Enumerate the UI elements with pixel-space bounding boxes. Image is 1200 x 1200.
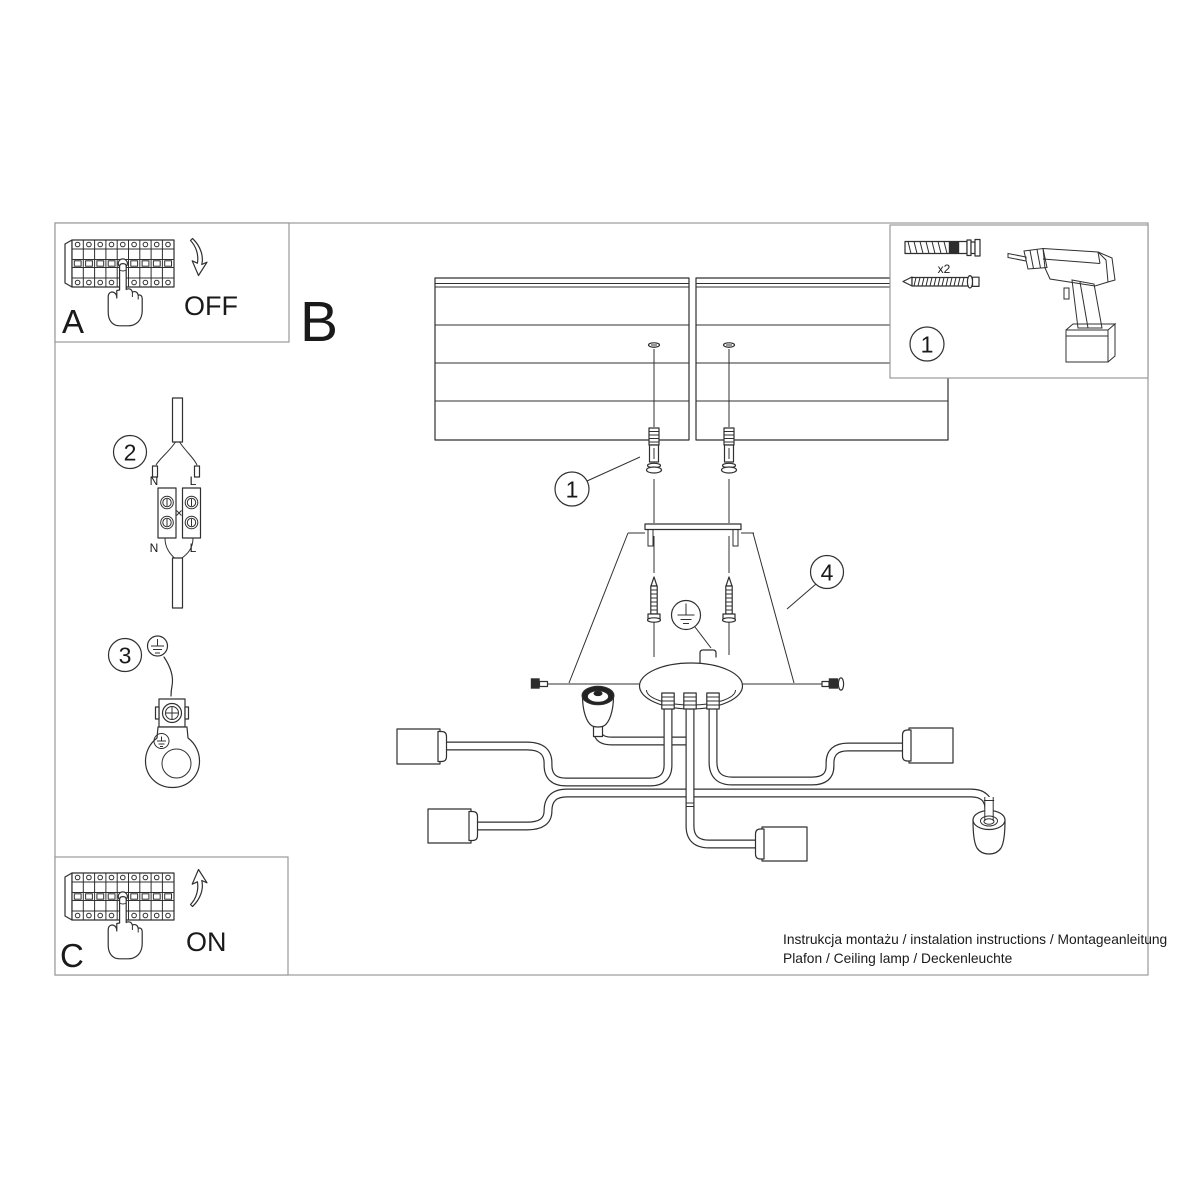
callout-2-number: 2	[124, 440, 137, 466]
screw-icon	[903, 276, 979, 288]
callout-4-number: 4	[821, 560, 834, 586]
lamp-arm-center	[686, 703, 763, 844]
ceiling-panels	[435, 278, 948, 440]
lamp-socket-lower-left	[428, 809, 478, 843]
callout-3-number: 3	[119, 643, 132, 669]
step-c-label: C	[60, 937, 84, 974]
earth-hook-icon	[700, 650, 716, 663]
earth-badge-icon	[148, 636, 168, 656]
ground-terminal-icon	[156, 699, 189, 727]
canopy-end-view	[146, 727, 200, 788]
wire-label-n-bottom: N	[150, 541, 159, 555]
footer-line-2: Plafon / Ceiling lamp / Deckenleuchte	[783, 951, 1013, 966]
canopy-bolt-left	[531, 679, 548, 689]
alignment-guides-upper	[654, 479, 729, 523]
cable-top	[173, 398, 183, 442]
instruction-sheet: B 1	[0, 0, 1200, 1200]
ground-detail: 3	[109, 636, 200, 788]
canopy-bolt-right	[822, 678, 844, 690]
wiring-detail: 2 N L N L	[114, 398, 201, 608]
wire-label-n-top: N	[150, 474, 159, 488]
wall-plug-icon-left	[647, 428, 662, 473]
step-a-label: A	[62, 303, 84, 340]
quantity-label: x2	[938, 262, 951, 276]
wall-plug-icon	[905, 240, 980, 257]
alignment-guides-inner	[654, 536, 729, 657]
terminal-block-icon	[158, 488, 201, 538]
canopy-collars	[662, 693, 719, 709]
mounting-screw-icon-right	[723, 577, 736, 622]
cable-bottom	[173, 558, 183, 608]
step-a-action: OFF	[184, 291, 238, 321]
lamp-socket-far-right	[973, 797, 1005, 854]
callout-4: 4	[787, 556, 844, 610]
callout-1: 1	[555, 457, 640, 506]
toolbox: x2 1	[890, 225, 1148, 378]
lamp-arm-long	[472, 793, 989, 826]
mounting-bracket	[548, 524, 833, 684]
earth-wire	[164, 657, 173, 696]
footer-line-1: Instrukcja montażu / instalation instruc…	[783, 932, 1167, 947]
step-a-panel: A OFF	[55, 223, 289, 342]
lamp-socket-upper-left	[397, 729, 447, 764]
step-b-label: B	[300, 290, 338, 354]
lamp-socket-bottom	[756, 827, 808, 861]
step-c-panel: C ON	[55, 857, 288, 975]
lamp-socket-upper-right	[903, 728, 954, 763]
canopy-base	[640, 650, 743, 709]
earth-symbol-icon	[672, 601, 712, 649]
footer-text: Instrukcja montażu / instalation instruc…	[783, 932, 1167, 966]
wire-label-l-top: L	[190, 474, 197, 488]
callout-toolbox-1: 1	[910, 327, 944, 361]
mounting-screw-icon-left	[648, 577, 661, 622]
step-c-action: ON	[186, 927, 227, 957]
toolbox-step-number: 1	[921, 332, 934, 358]
lamp-arm-upper-right	[713, 703, 910, 781]
callout-1-number: 1	[566, 477, 579, 503]
wall-plug-icon-right	[722, 428, 737, 473]
